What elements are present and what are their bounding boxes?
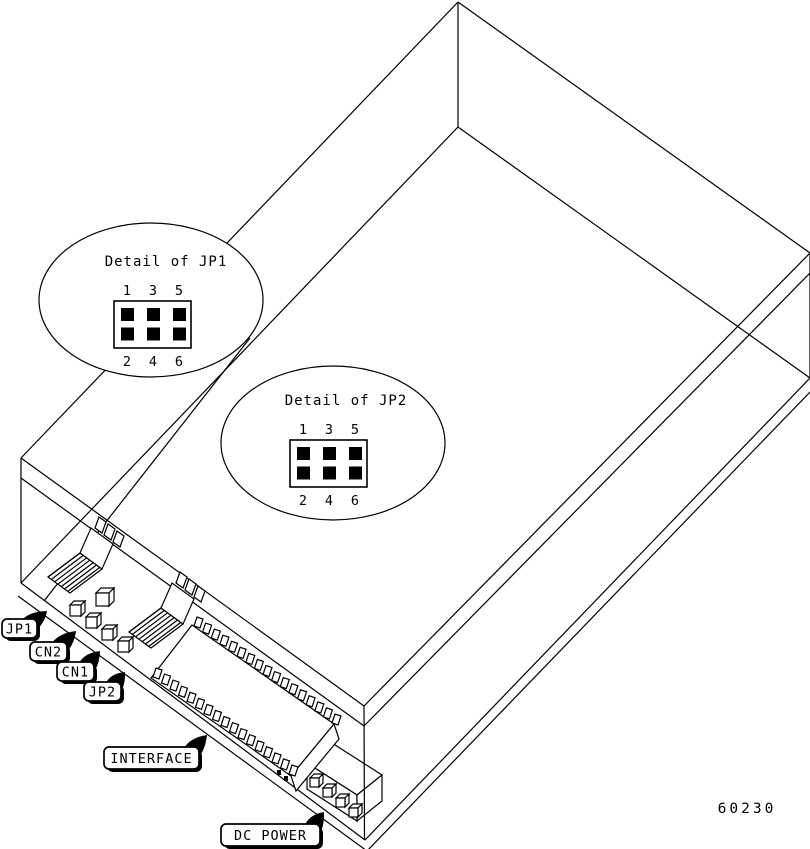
interface-pin <box>289 684 298 695</box>
jumper-cube <box>96 588 114 606</box>
jumper-cube <box>102 625 117 640</box>
pin-number: 2 <box>123 354 131 370</box>
jumper-pin <box>173 328 186 341</box>
interface-pin <box>211 629 220 640</box>
interface-pin <box>263 666 272 677</box>
jumper-pin <box>147 328 160 341</box>
jumper-cube <box>118 637 133 652</box>
callout-label: CN2 <box>35 645 62 661</box>
interface-pin <box>246 653 255 664</box>
part-number: 60230 <box>718 801 777 817</box>
interface-pin <box>315 702 324 713</box>
dc-power-pin <box>323 784 336 797</box>
jumper-pin <box>349 467 362 480</box>
interface-pin <box>229 641 238 652</box>
pin-number: 1 <box>299 422 307 438</box>
pin-number: 6 <box>351 493 359 509</box>
dc-power-pin <box>310 774 323 787</box>
interface-pin <box>203 623 212 634</box>
jumper-pin <box>121 308 134 321</box>
interface-key-pin <box>284 776 288 781</box>
jumper-pin <box>121 328 134 341</box>
callout-interface: INTERFACE <box>104 735 207 772</box>
top-edge <box>458 2 810 253</box>
header-prong <box>185 579 196 595</box>
jumper-pin <box>323 467 336 480</box>
jumper-pin <box>147 308 160 321</box>
header-prong <box>194 586 205 602</box>
interface-pin <box>220 635 229 646</box>
detail-balloon-jp2: Detail of JP2 1 3 5 2 4 6 <box>221 366 445 520</box>
dc-power-pin <box>349 804 362 817</box>
interface-pin <box>237 647 246 658</box>
pin-number: 2 <box>299 493 307 509</box>
callout-label: CN1 <box>62 665 89 681</box>
pin-number: 6 <box>175 354 183 370</box>
pin-number: 5 <box>175 283 183 299</box>
pin-number: 3 <box>325 422 333 438</box>
header-prong <box>176 572 187 588</box>
dc-power-pin <box>336 794 349 807</box>
interface-pin <box>272 672 281 683</box>
header-prong <box>104 524 115 540</box>
jumper-pin <box>297 447 310 460</box>
jumper-cube <box>70 601 85 616</box>
callout-jp1: JP1 <box>2 611 47 641</box>
interface-pin <box>280 678 289 689</box>
interface-pin <box>323 708 332 719</box>
header-prong <box>113 531 124 547</box>
detail-title: Detail of JP2 <box>285 393 408 409</box>
pin-number: 1 <box>123 283 131 299</box>
hard-drive-jumper-diagram: Detail of JP1 1 3 5 2 4 6 Detail of JP2 … <box>0 0 810 849</box>
pin-number: 5 <box>351 422 359 438</box>
callout-label: INTERFACE <box>110 751 192 767</box>
interface-pin <box>306 696 315 707</box>
jumper-pin <box>173 308 186 321</box>
detail-balloon-jp1: Detail of JP1 1 3 5 2 4 6 <box>39 223 263 377</box>
callout-label: DC POWER <box>234 828 307 844</box>
jumper-cube <box>86 613 101 628</box>
callout-label: JP1 <box>6 622 33 638</box>
detail-title: Detail of JP1 <box>105 254 228 270</box>
jumper-pin <box>323 447 336 460</box>
jumper-pin <box>349 447 362 460</box>
callout-dc-power: DC POWER <box>221 812 324 849</box>
pin-number: 4 <box>325 493 333 509</box>
pin-number: 3 <box>149 283 157 299</box>
cover-seam-line <box>364 273 810 726</box>
bottom-edge <box>458 127 810 378</box>
header-prong <box>95 517 106 533</box>
callout-label: JP2 <box>89 685 116 701</box>
interface-pin <box>332 714 341 725</box>
interface-pin <box>298 690 307 701</box>
interface-pin <box>194 617 203 628</box>
interface-key-pin <box>277 770 281 775</box>
jumper-pin <box>297 467 310 480</box>
pin-number: 4 <box>149 354 157 370</box>
connector-cn2-header <box>48 517 124 593</box>
interface-pin <box>254 659 263 670</box>
diagram-page: Detail of JP1 1 3 5 2 4 6 Detail of JP2 … <box>0 0 810 849</box>
